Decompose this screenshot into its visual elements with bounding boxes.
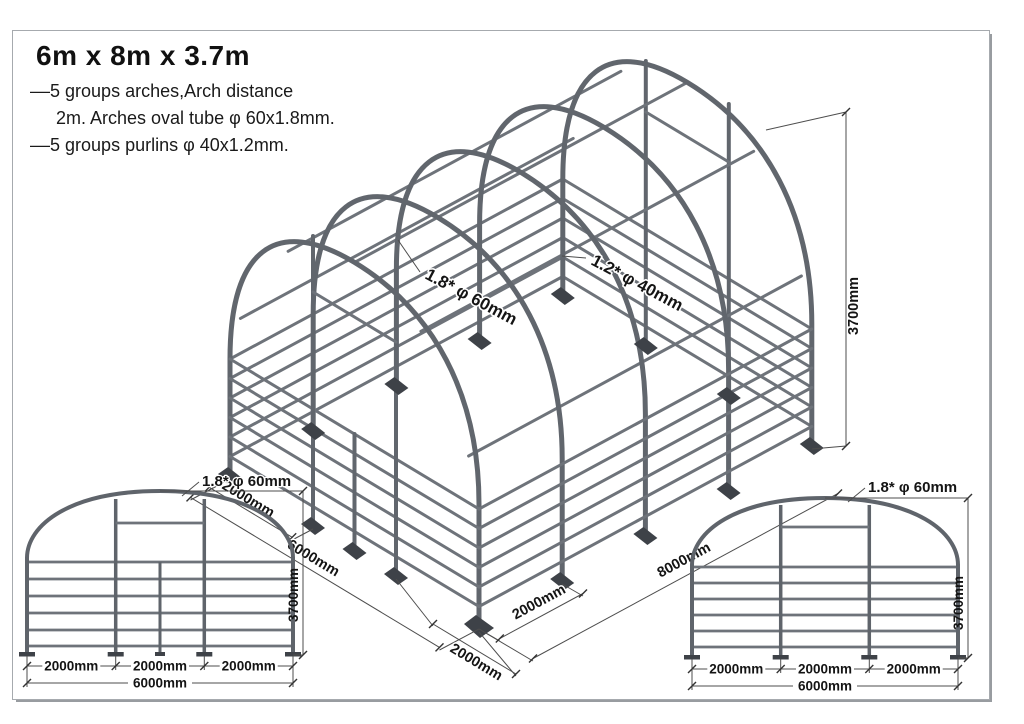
rear-bay1-dim: 2000mm <box>709 662 763 677</box>
front-bay2-dim: 2000mm <box>133 659 187 674</box>
iso-height-dim-label: 3700mm <box>846 277 862 335</box>
rear-bay3-dim: 2000mm <box>887 662 941 677</box>
iso-length-dim-label: 8000mm <box>655 540 714 582</box>
front-height-dim: 3700mm <box>286 568 301 622</box>
front-arch-tube-label: 1.8* φ 60mm <box>202 473 291 490</box>
front-total-dim: 6000mm <box>133 676 187 691</box>
rear-total-dim: 6000mm <box>798 679 852 694</box>
rear-view-structure <box>684 498 966 660</box>
front-bay1-dim: 2000mm <box>44 659 98 674</box>
iso-arches <box>230 62 812 626</box>
rear-height-dim: 3700mm <box>951 576 966 630</box>
rear-arch-tube-label: 1.8* φ 60mm <box>868 479 957 496</box>
rear-view-drawing: 2000mm 2000mm 2000mm 6000mm 3700mm 1.8* … <box>684 479 972 694</box>
drawing-canvas: 2000mm 6000mm 2000mm 2000mm 8000mm 3700m… <box>0 0 1024 724</box>
rear-view-dimensions: 2000mm 2000mm 2000mm 6000mm 3700mm 1.8* … <box>688 479 972 694</box>
front-bay3-dim: 2000mm <box>222 659 276 674</box>
iso-back-wall-posts <box>646 61 729 396</box>
rear-bay2-dim: 2000mm <box>798 662 852 677</box>
front-view-structure <box>19 491 301 657</box>
